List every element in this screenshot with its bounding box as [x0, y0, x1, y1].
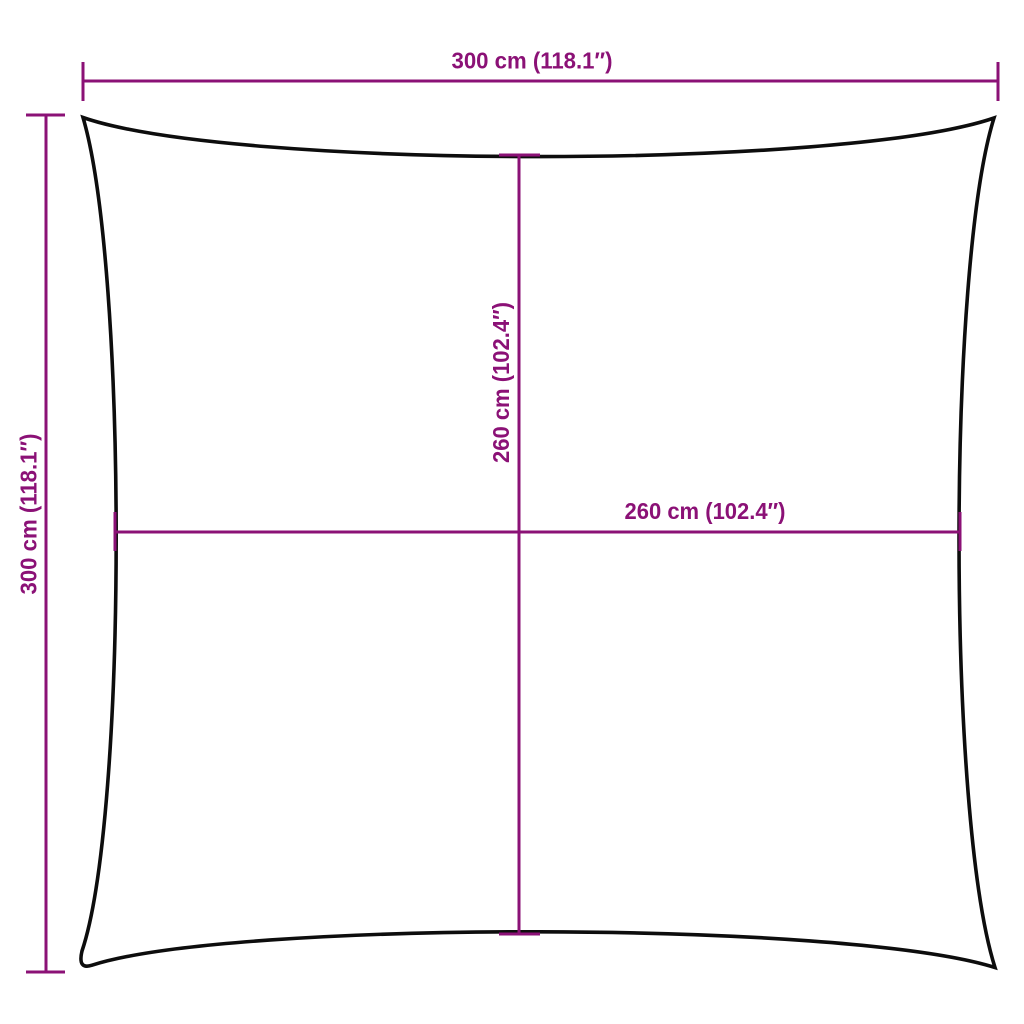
- svg-text:260 cm (102.4″): 260 cm (102.4″): [488, 302, 514, 463]
- svg-text:300 cm (118.1″): 300 cm (118.1″): [452, 48, 613, 74]
- svg-text:260 cm (102.4″): 260 cm (102.4″): [625, 498, 786, 524]
- svg-text:300 cm (118.1″): 300 cm (118.1″): [16, 434, 42, 595]
